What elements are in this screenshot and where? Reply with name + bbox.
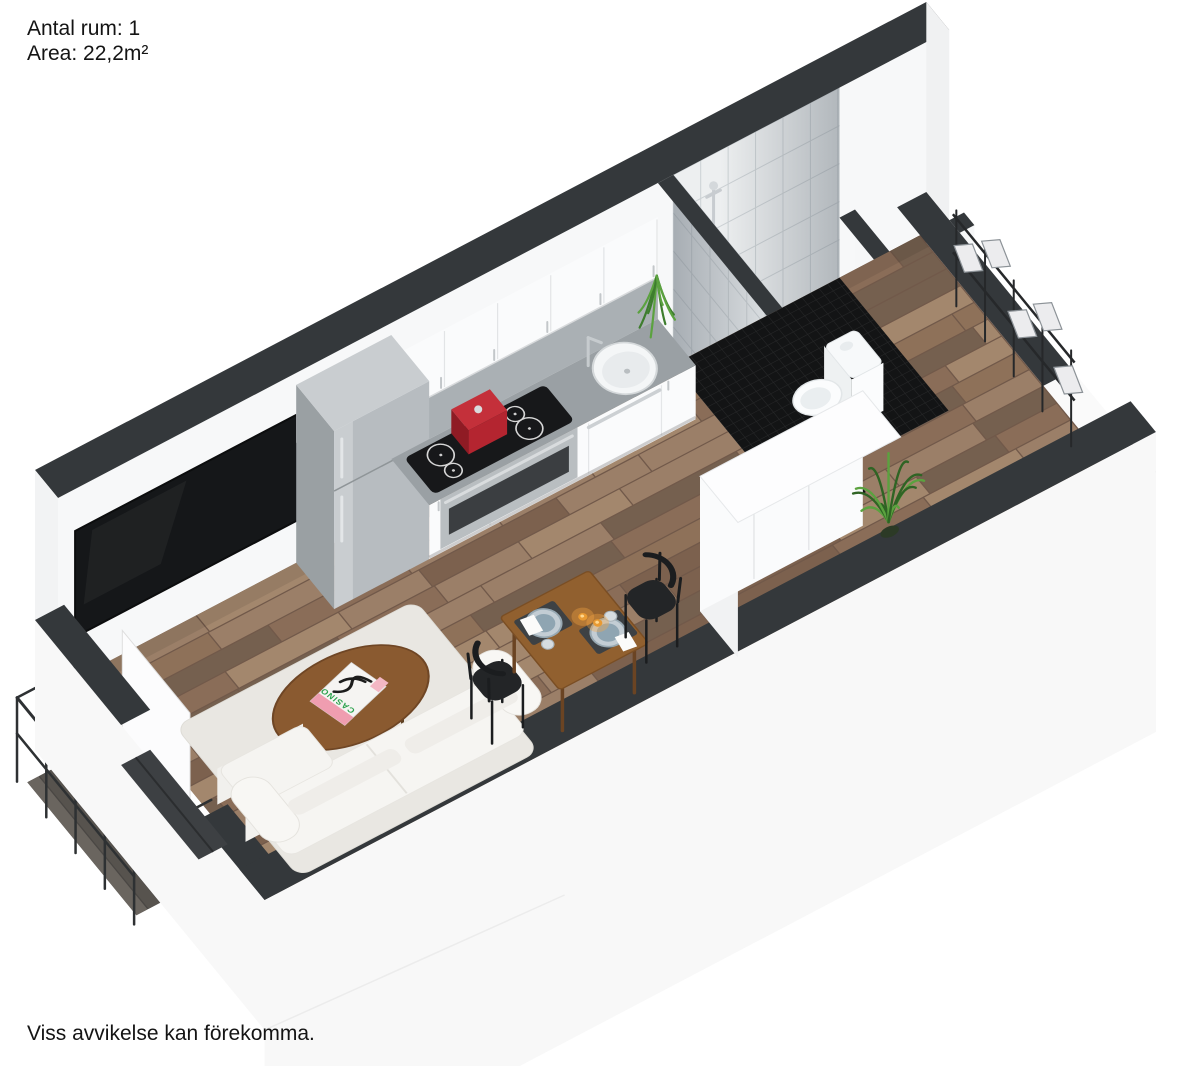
disclaimer-text: Viss avvikelse kan förekomma.: [27, 1022, 315, 1046]
floorplan-3d-view: CASINO: [0, 0, 1200, 1066]
